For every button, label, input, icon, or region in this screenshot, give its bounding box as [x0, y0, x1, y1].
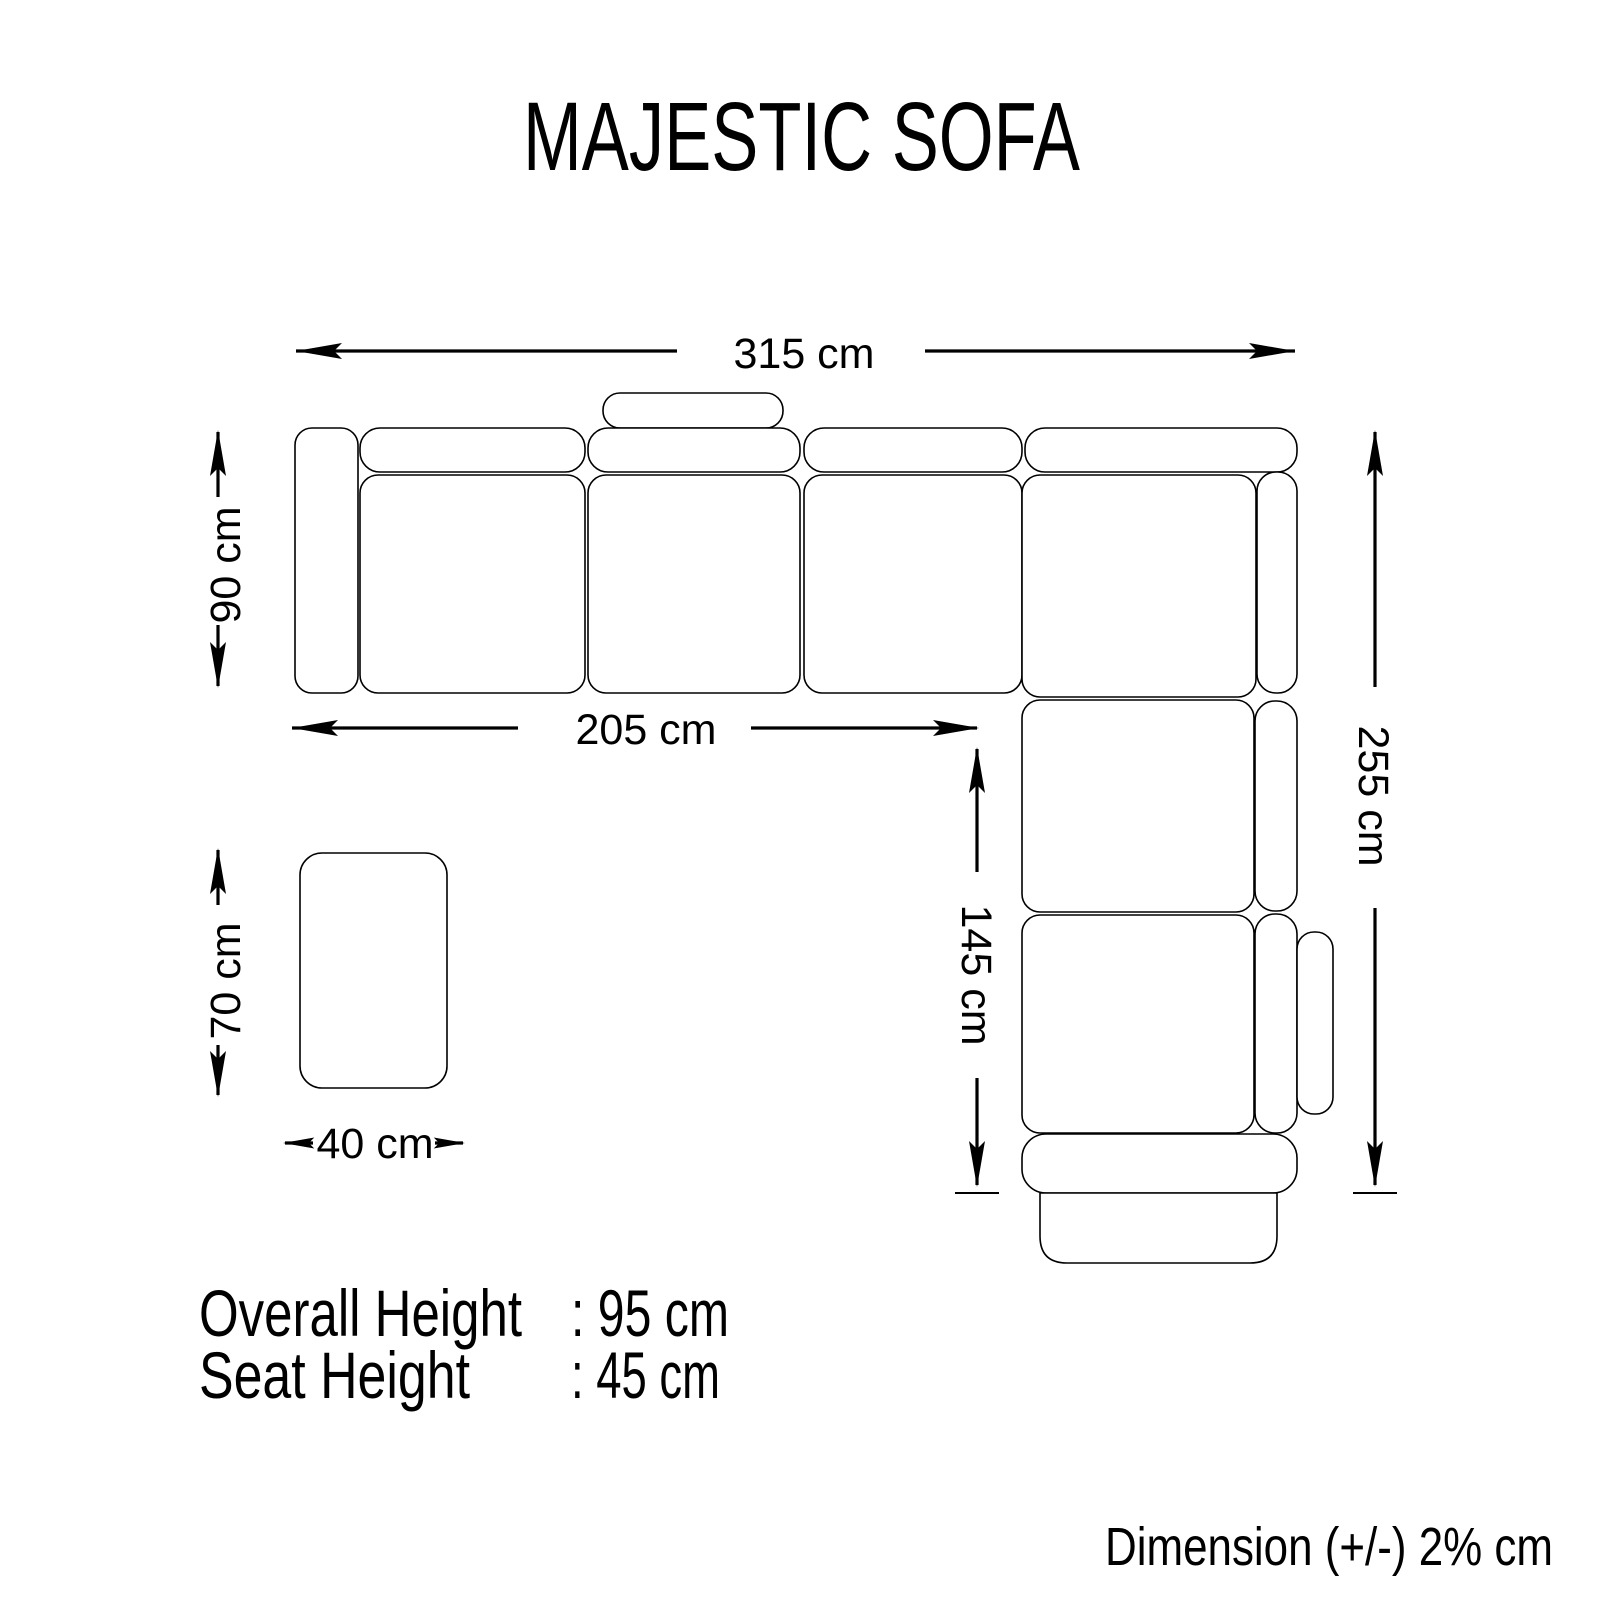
bottom-armrest	[1022, 1134, 1297, 1193]
seat-3	[804, 475, 1022, 693]
tolerance-note: Dimension (+/-) 2% cm	[1105, 1517, 1553, 1577]
corner-backrest	[1025, 428, 1297, 472]
label-ottoman-width: 40 cm	[316, 1120, 433, 1168]
right-backrest-low	[1255, 914, 1297, 1133]
seat-2	[588, 475, 800, 693]
right-armrest-bump	[1297, 932, 1333, 1114]
right-backrest-mid	[1255, 701, 1297, 911]
dimension-ottoman-width: 40 cm	[283, 1120, 465, 1168]
dimension-right-depth: 255 cm	[1349, 430, 1397, 1193]
label-ottoman-depth: 70 cm	[202, 922, 250, 1039]
corner-seat	[1022, 475, 1256, 697]
ottoman	[300, 853, 447, 1088]
label-inner-depth: 145 cm	[952, 904, 1000, 1045]
sofa-dimension-diagram: MAJESTIC SOFA 315 cm 90 cm	[0, 0, 1600, 1600]
label-seat-run: 205 cm	[575, 706, 716, 754]
left-armrest	[295, 428, 358, 693]
headrest-cushion	[603, 393, 783, 428]
bottom-base	[1040, 1193, 1277, 1263]
dimension-inner-depth: 145 cm	[952, 747, 1000, 1193]
backrest-1	[360, 428, 585, 472]
seat-low-right	[1022, 915, 1254, 1133]
label-left-depth: 90 cm	[202, 506, 250, 623]
right-backrest-top	[1257, 472, 1297, 693]
seat-height-label: Seat Height	[199, 1338, 470, 1412]
dimension-left-depth: 90 cm	[202, 430, 250, 688]
label-total-width: 315 cm	[733, 330, 874, 378]
dimension-total-width: 315 cm	[296, 330, 1295, 378]
dimension-ottoman-depth: 70 cm	[202, 848, 250, 1097]
label-right-depth: 255 cm	[1349, 725, 1397, 866]
seat-mid-right	[1022, 700, 1254, 912]
backrest-2	[588, 428, 800, 472]
seat-height-value: : 45 cm	[571, 1338, 720, 1412]
page-title: MAJESTIC SOFA	[523, 82, 1080, 191]
dimension-seat-run: 205 cm	[292, 706, 979, 754]
seat-1	[360, 475, 585, 693]
spec-block: Overall Height : 95 cm Seat Height : 45 …	[199, 1276, 729, 1412]
sofa-top-view	[295, 393, 1333, 1263]
backrest-3	[804, 428, 1022, 472]
